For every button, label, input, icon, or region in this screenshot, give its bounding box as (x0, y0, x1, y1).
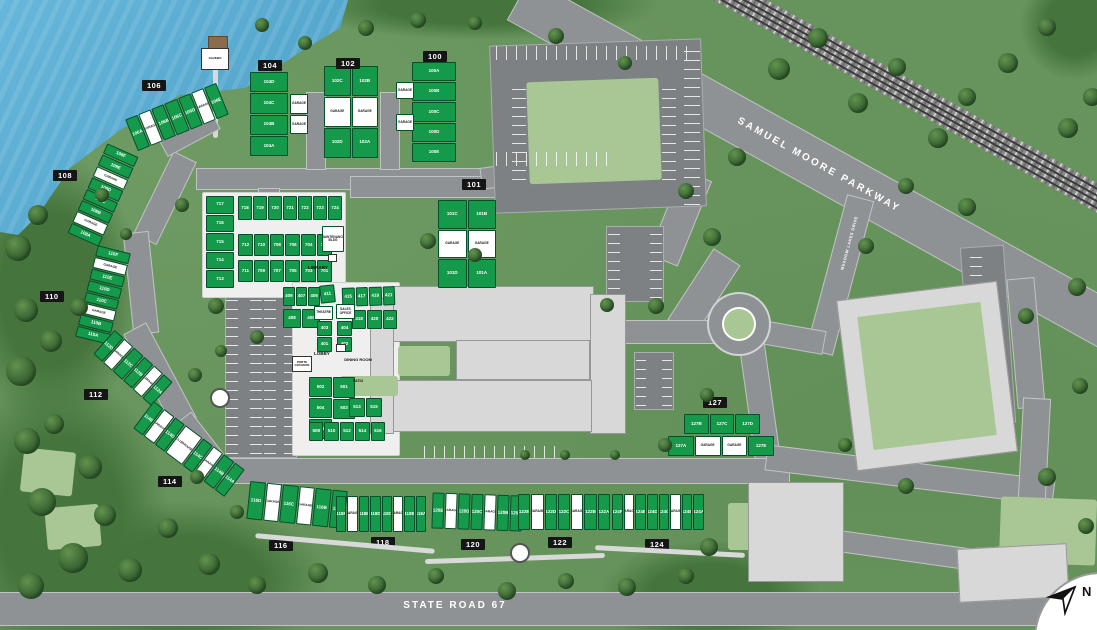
garage: GARAGE (290, 94, 308, 114)
tree-icon (44, 414, 64, 434)
tree-icon (58, 543, 88, 573)
parking-stalls (512, 84, 526, 180)
tree-icon (468, 16, 482, 30)
units-712-702: 712710708706704702 (238, 234, 332, 256)
garage: GARAGE (347, 496, 357, 532)
tree-icon (255, 18, 269, 32)
unit-719: 719 (253, 196, 267, 220)
unit-704: 704 (301, 234, 316, 256)
tree-icon (250, 330, 264, 344)
neighbor-courtyard (857, 302, 996, 450)
tree-icon (5, 235, 31, 261)
unit-720: 720 (268, 196, 282, 220)
unit-708: 708 (270, 234, 285, 256)
tree-icon (703, 228, 721, 246)
tree-icon (998, 53, 1018, 73)
unit-723: 723 (313, 196, 327, 220)
tree-icon (1068, 278, 1086, 296)
building-id-108: 108 (53, 170, 77, 181)
tree-icon (40, 330, 62, 352)
tree-icon (658, 438, 672, 452)
unit-710: 710 (254, 234, 269, 256)
tree-icon (14, 428, 40, 454)
unit-127e: 127E (748, 436, 774, 456)
neighbor-building (836, 281, 1018, 471)
unit-122d: 122D (545, 494, 557, 530)
tree-icon (1083, 88, 1097, 106)
parking-stalls (650, 230, 662, 298)
tree-icon (610, 450, 620, 460)
tree-icon (94, 504, 116, 526)
garage: GARAGE (324, 97, 351, 126)
unit-101a: 101A (468, 259, 497, 288)
sales-office-building: SALES OFFICE (336, 304, 355, 319)
tree-icon (1038, 468, 1056, 486)
road-label-state-road: STATE ROAD 67 (385, 600, 525, 611)
tree-icon (215, 345, 227, 357)
building-100-units: 100A100B100C100D100E (412, 62, 456, 162)
unit-104c: 104C (250, 93, 288, 113)
unit-101d: 101D (438, 259, 467, 288)
unit-101b: 101B (468, 200, 497, 229)
building-104-units: 104D104C104B104A (250, 72, 288, 156)
dining-room-label: DINING ROOM (342, 357, 374, 362)
northeast-courtyard (526, 78, 661, 185)
unit-118f: 118F (336, 496, 346, 532)
unit-120b: 120B (496, 495, 509, 531)
unit-513: 513 (349, 398, 365, 417)
tree-icon (618, 578, 636, 596)
lobby-label: LOBBY (314, 351, 330, 356)
units-718-724: 718719720721722723724 (238, 196, 342, 220)
unit-721: 721 (283, 196, 297, 220)
parking-stalls (264, 288, 276, 454)
tree-icon (78, 455, 102, 479)
building-id-112: 112 (84, 389, 108, 400)
tree-icon (248, 576, 266, 594)
tree-icon (308, 563, 328, 583)
building-id-104: 104 (258, 60, 282, 71)
tree-icon (808, 28, 828, 48)
unit-122b: 122B (584, 494, 596, 530)
tree-icon (898, 178, 914, 194)
garage: GARAGE (393, 496, 403, 532)
porte-cochere: PORTE COCHERE (292, 356, 312, 372)
building-id-100: 100 (423, 51, 447, 62)
unit-712: 712 (238, 234, 253, 256)
tree-icon (18, 573, 44, 599)
unit-419: 419 (369, 287, 382, 306)
unit-715: 715 (206, 233, 234, 251)
parking-stalls (662, 356, 672, 406)
tree-icon (158, 518, 178, 538)
unit-716: 716 (206, 215, 234, 233)
units-513-515: 513515 (349, 398, 382, 417)
parking-stalls (226, 288, 238, 454)
parking-stalls (684, 50, 700, 205)
tree-icon (648, 298, 664, 314)
unit-124a: 124A (693, 494, 704, 530)
garage: GARAGE (695, 436, 721, 456)
parking-stalls (608, 230, 620, 298)
unit-421: 421 (382, 286, 395, 305)
south-loop-road (225, 458, 790, 484)
unit-417: 417 (355, 287, 368, 306)
unit-102c: 102C (324, 66, 351, 96)
unit-118e: 118E (359, 496, 369, 532)
gazebo-icon (210, 388, 230, 408)
building-id-106: 106 (142, 80, 166, 91)
building-118-units: 118FGARAGE118E118D118CGARAGE118B118A (336, 496, 426, 532)
tree-icon (358, 20, 374, 36)
tree-icon (520, 450, 530, 460)
units-717-713: 717716715714713 (206, 196, 234, 288)
building-120-units: 120EGARAGE120D120CGARAGE120B120A (431, 492, 522, 531)
tree-icon (1072, 378, 1088, 394)
garage: GARAGE (722, 436, 748, 456)
tree-icon (558, 573, 574, 589)
unit-516: 516 (371, 422, 385, 441)
tree-icon (410, 12, 426, 28)
unit-122a: 122A (598, 494, 610, 530)
tree-icon (600, 298, 614, 312)
tree-icon (28, 488, 56, 516)
tree-icon (190, 470, 204, 484)
tree-icon (560, 450, 570, 460)
unit-120e: 120E (431, 492, 444, 528)
garage: GARAGE (352, 97, 379, 126)
unit-422: 422 (383, 310, 397, 329)
unit-405: 405 (308, 287, 320, 306)
main-building-wing (392, 380, 592, 432)
unit-124e: 124E (635, 494, 646, 530)
main-building-wing (392, 286, 594, 342)
gazebo-label: GAZEBO (209, 57, 222, 60)
unit-100a: 100A (412, 62, 456, 81)
building-100-garage: GARAGE (396, 82, 414, 99)
building-102-units: 102C102BGARAGEGARAGE102D102A (324, 66, 378, 158)
tree-icon (700, 388, 714, 402)
tree-icon (1018, 308, 1034, 324)
driveway (306, 92, 326, 170)
unit-124c: 124C (659, 494, 670, 530)
main-building-wing (590, 294, 626, 434)
unit-124d: 124D (647, 494, 658, 530)
building-127-units-bottom: 127AGARAGEGARAGE127E (668, 436, 774, 456)
unit-127c: 127C (710, 414, 735, 434)
parking-stalls (636, 356, 646, 406)
tree-icon (838, 438, 852, 452)
unit-124b: 124B (682, 494, 693, 530)
unit-118a: 118A (416, 496, 426, 532)
unit-409: 409 (283, 287, 295, 306)
garage: GARAGE (483, 494, 496, 530)
tree-icon (848, 93, 868, 113)
unit-118c: 118C (382, 496, 392, 532)
maintenance-bldg: MAINTENANCE BLDG (322, 226, 344, 252)
unit-102a: 102A (352, 128, 379, 158)
unit-122c: 122C (558, 494, 570, 530)
building-id-110: 110 (40, 291, 64, 302)
unit-703: 703 (301, 260, 316, 282)
library-label: LIBRARY (308, 265, 328, 270)
tree-icon (198, 553, 220, 575)
unit-705: 705 (285, 260, 300, 282)
unit-100c: 100C (412, 102, 456, 121)
road-label-parkway: SAMUEL MOORE PARKWAY (735, 115, 902, 214)
unit-403: 403 (317, 321, 332, 336)
tree-icon (14, 298, 38, 322)
theatre-building: THEATRE (314, 306, 333, 320)
parking-stalls (662, 84, 676, 180)
unit-408: 408 (283, 309, 301, 328)
unit-104b: 104B (250, 115, 288, 135)
unit-501: 501 (333, 377, 355, 398)
unit-127b: 127B (684, 414, 709, 434)
tree-icon (298, 36, 312, 50)
tree-icon (428, 568, 444, 584)
tree-icon (120, 228, 132, 240)
small-structure (328, 254, 337, 262)
building-id-101: 101 (462, 179, 486, 190)
unit-420: 420 (367, 310, 381, 329)
theatre: THEATRE (314, 306, 333, 320)
tree-icon (118, 558, 142, 582)
neighbor-building (748, 482, 844, 582)
garage: GARAGE (571, 494, 583, 530)
tree-icon (175, 198, 189, 212)
garage: GARAGE (396, 82, 414, 99)
unit-124f: 124F (612, 494, 623, 530)
building-127-units-top: 127B127C127D (684, 414, 760, 434)
porte-cochere-label: PORTE COCHERE (293, 361, 311, 368)
tree-icon (728, 148, 746, 166)
main-building-wing (456, 340, 590, 380)
garage: GARAGE (531, 494, 543, 530)
building-id-122: 122 (548, 537, 572, 548)
unit-101c: 101C (438, 200, 467, 229)
tree-icon (28, 205, 48, 225)
tree-icon (468, 248, 482, 262)
unit-100e: 100E (412, 143, 456, 162)
unit-100b: 100B (412, 82, 456, 101)
tree-icon (618, 56, 632, 70)
units-508-516: 508510512514516 (309, 422, 385, 441)
road-label-meadow-lakes: MEADOW LAKES DRIVE (839, 216, 858, 271)
tree-icon (958, 88, 976, 106)
small-structure (336, 344, 346, 352)
unit-713: 713 (206, 270, 234, 288)
unit-122e: 122E (518, 494, 530, 530)
tree-icon (898, 478, 914, 494)
unit-514: 514 (355, 422, 369, 441)
units-418-422: 418420422 (352, 310, 397, 329)
unit-401: 401 (317, 337, 332, 352)
tree-icon (188, 368, 202, 382)
state-road-67 (0, 592, 1097, 626)
tree-icon (1078, 518, 1094, 534)
unit-714: 714 (206, 252, 234, 270)
garage: GARAGE (624, 494, 635, 530)
unit-508: 508 (309, 422, 323, 441)
unit-404: 404 (337, 321, 352, 336)
parking-stalls (496, 46, 696, 60)
building-100-garage: GARAGE (396, 114, 414, 131)
sales-office: SALES OFFICE (336, 304, 355, 319)
tree-icon (1038, 18, 1056, 36)
unit-512: 512 (340, 422, 354, 441)
unit-104d: 104D (250, 72, 288, 92)
patio-label: PATIO (353, 379, 363, 383)
building-id-120: 120 (461, 539, 485, 550)
tree-icon (678, 183, 694, 199)
unit-100d: 100D (412, 123, 456, 142)
tree-icon (368, 576, 386, 594)
unit-411: 411 (319, 284, 336, 303)
tree-icon (230, 505, 244, 519)
tree-icon (208, 298, 224, 314)
building-122-units: 122EGARAGE122D122CGARAGE122B122A (518, 494, 610, 530)
garage: GARAGE (396, 114, 414, 131)
tree-icon (928, 128, 948, 148)
unit-120d: 120D (457, 493, 470, 529)
unit-510: 510 (324, 422, 338, 441)
gazebo-icon (510, 543, 530, 563)
unit-709: 709 (254, 260, 269, 282)
driveway (380, 92, 400, 170)
unit-104a: 104A (250, 136, 288, 156)
garage: GARAGE (290, 115, 308, 135)
building-101-units: 101C101BGARAGEGARAGE101D101A (438, 200, 496, 288)
unit-701: 701 (317, 260, 332, 282)
unit-717: 717 (206, 196, 234, 214)
building-id-116: 116 (269, 540, 293, 551)
parking-stalls (250, 288, 262, 454)
tree-icon (700, 538, 718, 556)
tree-icon (858, 238, 874, 254)
unit-722: 722 (298, 196, 312, 220)
tree-icon (95, 188, 109, 202)
roundabout-island (722, 307, 756, 341)
tree-icon (678, 568, 694, 584)
site-map: SAMUEL MOORE PARKWAY MEADOW LAKES DRIVE (0, 0, 1097, 630)
forest-patch (1020, 0, 1097, 80)
unit-718: 718 (238, 196, 252, 220)
unit-711: 711 (238, 260, 253, 282)
garage: GARAGE (670, 494, 681, 530)
units-711-701: 711709707705703701 (238, 260, 332, 282)
tree-icon (888, 58, 906, 76)
unit-724: 724 (328, 196, 342, 220)
unit-118d: 118D (370, 496, 380, 532)
unit-118b: 118B (404, 496, 414, 532)
units-409-405: 409407405 (283, 287, 320, 306)
garage: GARAGE (444, 493, 457, 529)
unit-515: 515 (366, 398, 382, 417)
tree-icon (768, 58, 790, 80)
unit-102b: 102B (352, 66, 379, 96)
tree-icon (70, 298, 88, 316)
building-104-garages: GARAGEGARAGE (290, 94, 308, 134)
compass-north-label: N (1082, 584, 1091, 599)
unit-407: 407 (296, 287, 308, 306)
maintenance-building: MAINTENANCE BLDG (322, 226, 344, 252)
tree-icon (958, 198, 976, 216)
unit-127d: 127D (735, 414, 760, 434)
unit-502: 502 (309, 377, 332, 397)
unit-411: 411 (319, 284, 336, 303)
unit-504: 504 (309, 398, 332, 418)
unit-707: 707 (270, 260, 285, 282)
unit-706: 706 (285, 234, 300, 256)
building-id-114: 114 (158, 476, 182, 487)
parking-stalls (424, 446, 564, 458)
inner-courtyard (398, 346, 450, 376)
units-403-401: 403401 (317, 321, 332, 352)
tree-icon (6, 356, 36, 386)
tree-icon (1058, 118, 1078, 138)
building-124-units: 124FGARAGE124E124D124CGARAGE124B124A (612, 494, 704, 530)
unit-120c: 120C (470, 494, 483, 530)
garage: GARAGE (438, 230, 467, 258)
unit-102d: 102D (324, 128, 351, 158)
tree-icon (420, 233, 436, 249)
tree-icon (548, 28, 564, 44)
building-id-102: 102 (336, 58, 360, 69)
tree-icon (498, 582, 516, 600)
gazebo-building: GAZEBO (201, 48, 229, 70)
